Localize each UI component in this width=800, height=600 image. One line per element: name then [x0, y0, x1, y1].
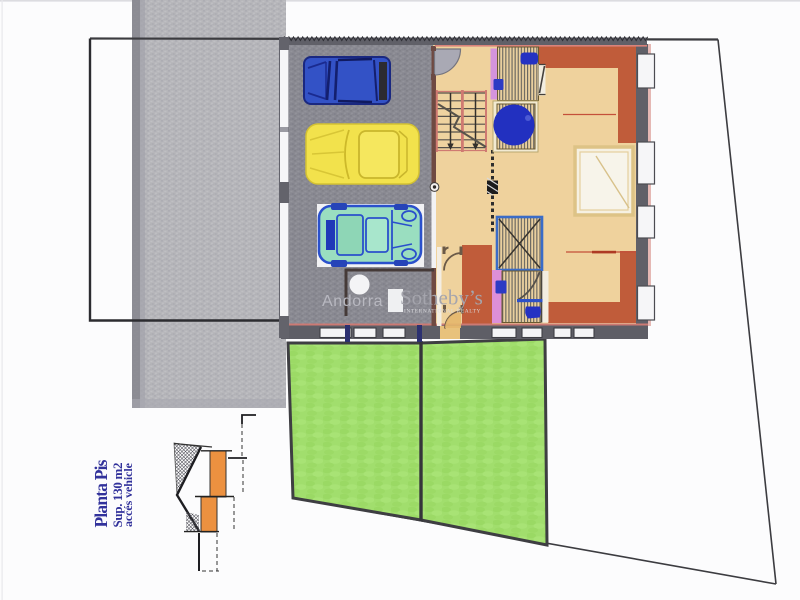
svg-text:INTERNATIONAL REALTY: INTERNATIONAL REALTY	[404, 309, 481, 315]
svg-text:Andorra: Andorra	[322, 293, 383, 310]
svg-text:accés vehicle: accés vehicle	[121, 462, 135, 527]
svg-text:Sotheby’s: Sotheby’s	[400, 286, 483, 310]
svg-text:Planta Pis: Planta Pis	[91, 459, 111, 527]
